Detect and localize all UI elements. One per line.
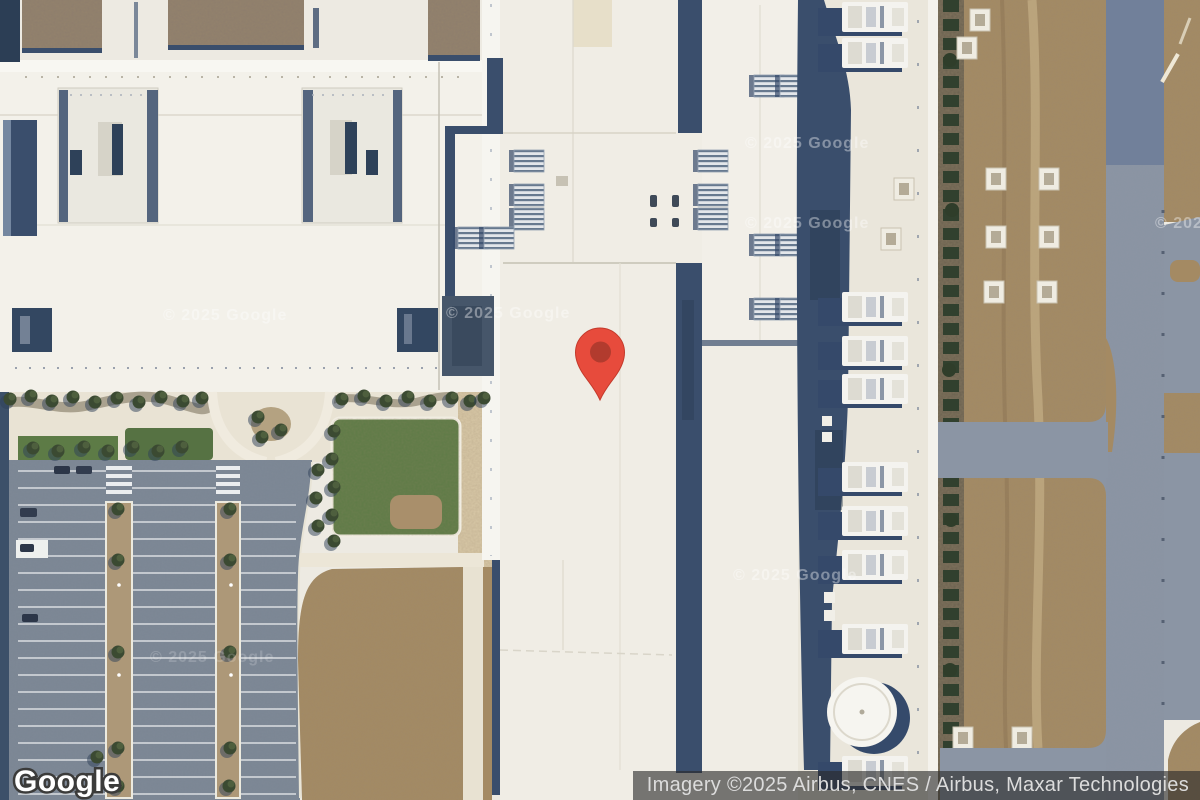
- tree-strip: [928, 0, 964, 800]
- left-edge-shadow: [0, 392, 9, 800]
- attribution-text: Imagery ©2025 Airbus, CNES / Airbus, Max…: [647, 774, 1189, 797]
- google-logo[interactable]: Google: [14, 765, 120, 798]
- google-watermark: © 2025 Google: [163, 307, 287, 324]
- dirt-field: [940, 0, 1108, 800]
- attribution-bar: Imagery ©2025 Airbus, CNES / Airbus, Max…: [633, 771, 1200, 800]
- pin-dot: [590, 342, 611, 363]
- google-watermark: © 2025 Google: [1155, 215, 1200, 232]
- google-watermark: © 2025 Google: [446, 305, 570, 322]
- dirt-patch: [298, 560, 500, 800]
- google-watermark: © 2025 Google: [745, 135, 869, 152]
- parking-lot: [8, 460, 312, 800]
- satellite-imagery: © 2025 Google © 2025 Google © 2025 Googl…: [0, 0, 1200, 800]
- google-watermark: © 2025 Google: [733, 567, 857, 584]
- east-apron: [797, 0, 930, 800]
- google-watermark: © 2025 Google: [745, 215, 869, 232]
- map-viewport[interactable]: © 2025 Google © 2025 Google © 2025 Googl…: [0, 0, 1200, 800]
- google-watermark: © 2025 Google: [150, 649, 274, 666]
